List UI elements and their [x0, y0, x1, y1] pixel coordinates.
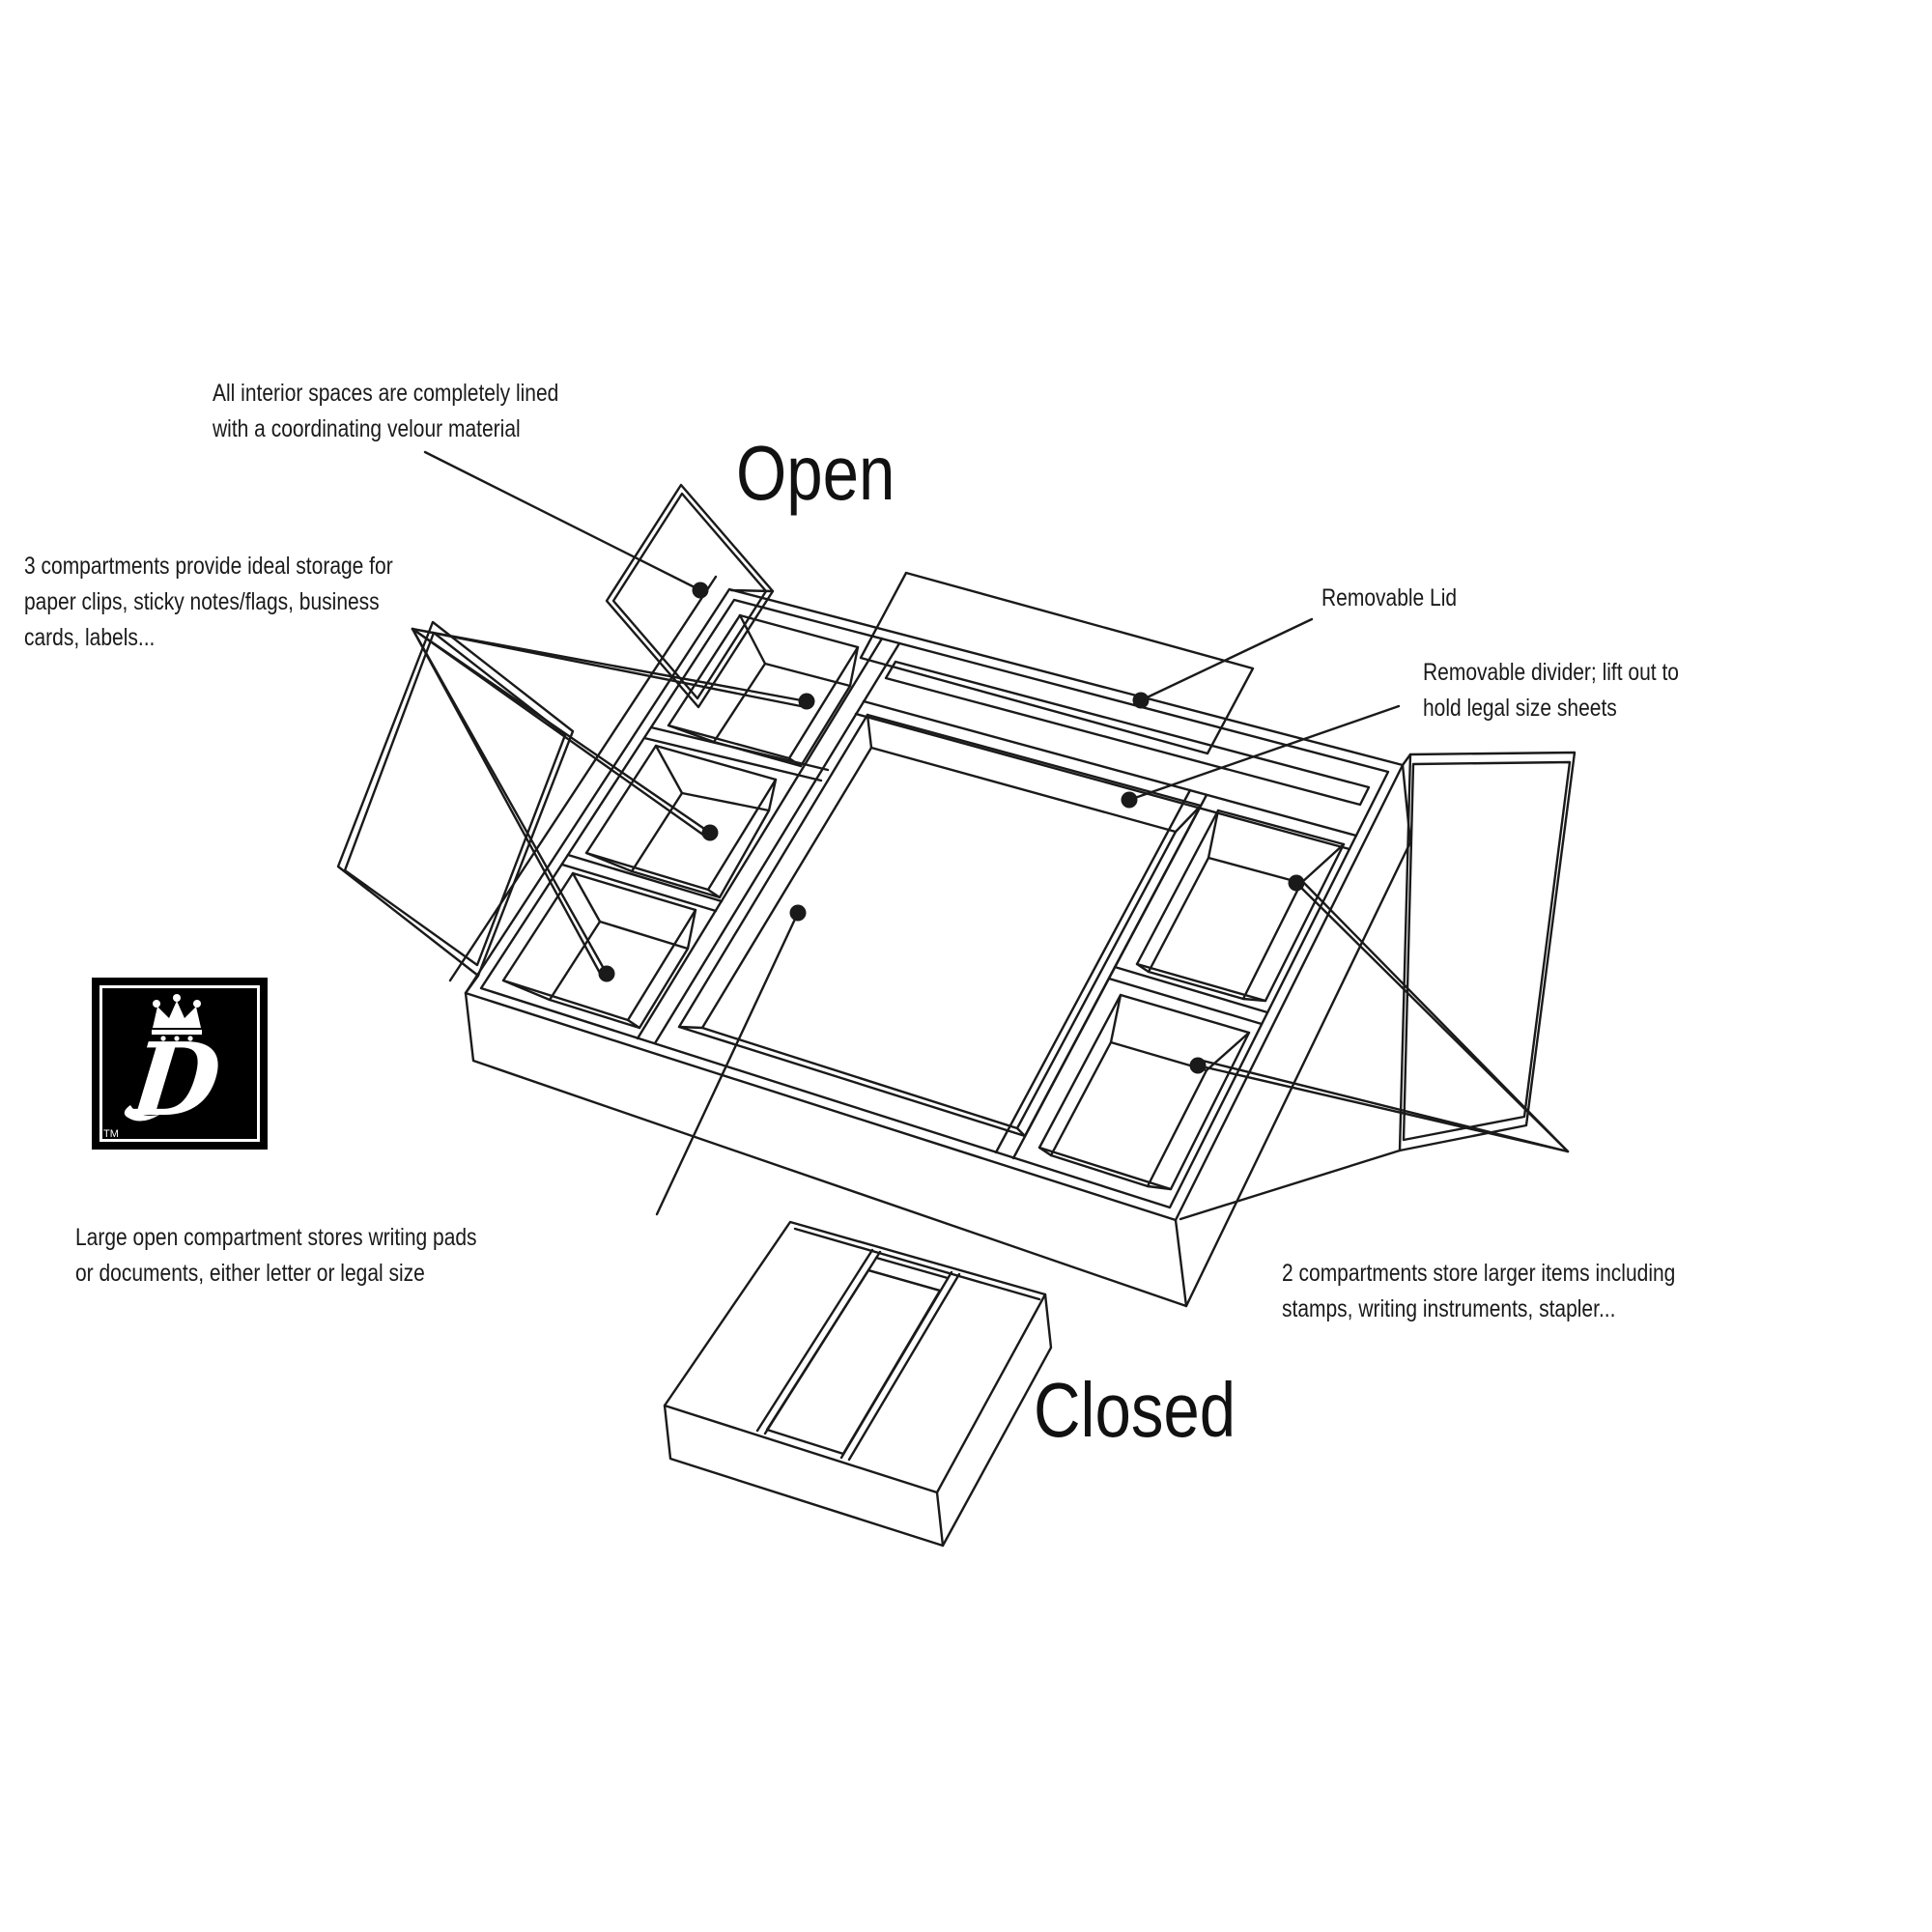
dot-removable-lid: [1133, 693, 1150, 709]
removable-divider: [886, 662, 1369, 805]
body-front-wall: [466, 993, 1186, 1306]
annotation-line: 3 compartments provide ideal storage for: [24, 549, 393, 584]
closed-organizer-drawing: [665, 1222, 1051, 1546]
annotation-line: stamps, writing instruments, stapler...: [1282, 1292, 1675, 1327]
dot-central-well: [790, 905, 807, 922]
dot-small-compartment-2: [702, 825, 719, 841]
leader-large-compartment: [657, 913, 798, 1214]
logo-letter: D: [128, 1030, 225, 1130]
annotation-line: Removable divider; lift out to: [1423, 655, 1679, 691]
right-flap: [1180, 753, 1575, 1219]
annotation-large-compartment: Large open compartment stores writing pa…: [75, 1220, 477, 1292]
annotation-removable-divider: Removable divider; lift out to hold lega…: [1423, 655, 1679, 726]
annotation-line: All interior spaces are completely lined: [213, 376, 558, 412]
annotation-line: hold legal size sheets: [1423, 691, 1679, 726]
annotation-line: Large open compartment stores writing pa…: [75, 1220, 477, 1256]
top-left-flap: [607, 485, 773, 707]
annotation-line: with a coordinating velour material: [213, 412, 558, 447]
dot-small-compartment-1: [799, 694, 815, 710]
annotation-line: 2 compartments store larger items includ…: [1282, 1256, 1675, 1292]
annotation-line: or documents, either letter or legal siz…: [75, 1256, 477, 1292]
callout-dots: [599, 582, 1305, 1074]
dot-removable-divider: [1122, 792, 1138, 809]
body-top-rim: [466, 589, 1403, 1220]
dot-large-compartment-1: [1289, 875, 1305, 892]
annotation-three-compartments: 3 compartments provide ideal storage for…: [24, 549, 393, 656]
logo-trademark: TM: [103, 1128, 119, 1140]
removable-lid: [861, 573, 1253, 753]
left-flap: [338, 622, 573, 993]
central-well: [679, 715, 1201, 1136]
dot-small-compartment-3: [599, 966, 615, 982]
left-hinge-line: [450, 577, 716, 980]
annotation-line: Removable Lid: [1321, 581, 1457, 616]
annotation-removable-lid: Removable Lid: [1321, 581, 1457, 616]
leader-lid: [1141, 619, 1312, 700]
dot-large-compartment-2: [1190, 1058, 1207, 1074]
annotation-two-compartments: 2 compartments store larger items includ…: [1282, 1256, 1675, 1327]
annotation-velour: All interior spaces are completely lined…: [213, 376, 558, 447]
dot-velour: [693, 582, 709, 599]
open-view-title: Open: [736, 435, 895, 512]
closed-view-title: Closed: [1034, 1372, 1236, 1449]
annotation-line: cards, labels...: [24, 620, 393, 656]
large-compartment-2: [1039, 995, 1249, 1189]
diagram-page: Open Closed All interior spaces are comp…: [0, 0, 1932, 1932]
body-right-wall: [1186, 765, 1410, 1306]
organizer-diagram: [0, 0, 1932, 1932]
annotation-line: paper clips, sticky notes/flags, busines…: [24, 584, 393, 620]
brand-logo: D TM: [92, 978, 268, 1150]
